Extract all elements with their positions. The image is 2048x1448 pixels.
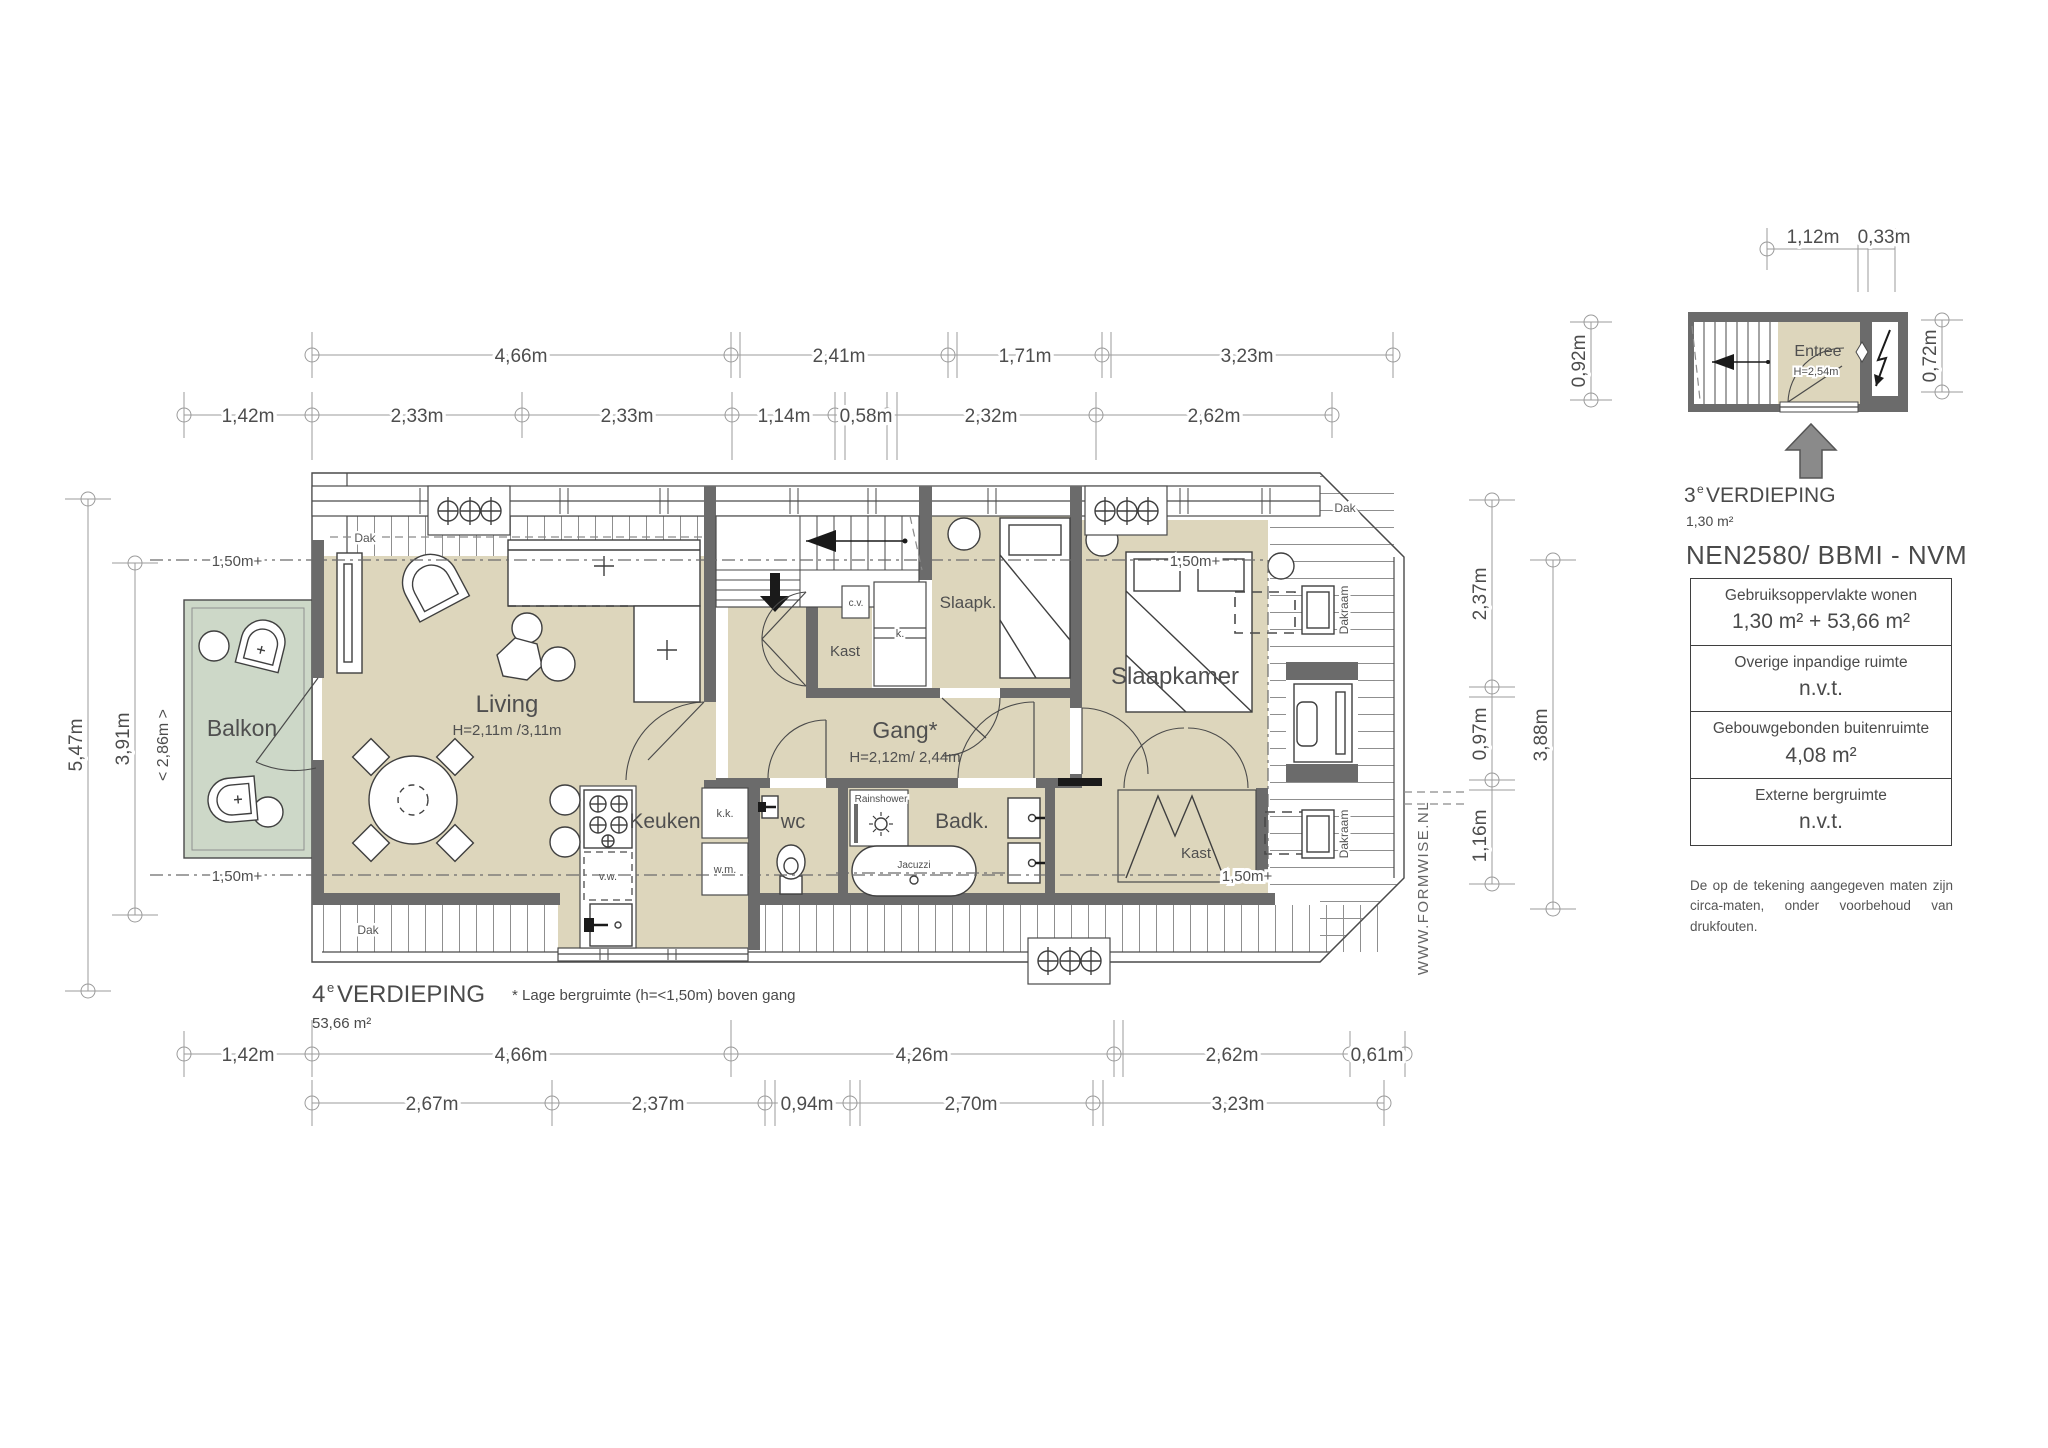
dim-mini-right: 0,72m (1920, 330, 1941, 383)
bedroom-stool-right (1268, 553, 1294, 579)
dim-top1-0: 4,66m (495, 346, 548, 367)
dim-bot2-2: 0,94m (781, 1094, 834, 1115)
dim-left-1: 3,91m (113, 713, 134, 766)
dim-bot1-4: 0,61m (1351, 1045, 1404, 1066)
legend-row-value: n.v.t. (1695, 674, 1947, 704)
kitchen-sink (584, 904, 632, 946)
dim-mini-left: 0,92m (1569, 335, 1590, 388)
floor4-word: VERDIEPING (337, 981, 485, 1008)
balcony-side-table (199, 631, 229, 661)
dim-right-2: 1,16m (1470, 810, 1491, 863)
entry-arrow-icon (1786, 424, 1836, 478)
legend-row: Gebouwgebonden buitenruimte 4,08 m² (1691, 712, 1951, 779)
dimensions-bottom: 1,42m 4,66m 4,26m 2,62m 0,61m 2,67m 2,37… (177, 1020, 1412, 1126)
living-label: Living (476, 691, 539, 718)
dim-top2-5: 2,32m (965, 406, 1018, 427)
dim-top2-6: 2,62m (1188, 406, 1241, 427)
legend-row-label: Gebruiksoppervlakte wonen (1695, 584, 1947, 607)
gang-height-label: H=2,12m/ 2,44m (849, 749, 960, 766)
kitchen-stool-1 (550, 785, 580, 815)
dim-top2-0: 1,42m (222, 406, 275, 427)
dak-label-bottom: Dak (357, 923, 379, 937)
legend-row-value: 4,08 m² (1695, 741, 1947, 771)
badk-label: Badk. (935, 810, 989, 833)
wm-label: w.m. (713, 864, 737, 876)
legend-row: Gebruiksoppervlakte wonen 1,30 m² + 53,6… (1691, 579, 1951, 646)
clearance-bedroom: 1,50m+ (1170, 553, 1221, 570)
legend-row: Overige inpandige ruimte n.v.t. (1691, 646, 1951, 713)
keuken-label: Keuken (629, 810, 700, 833)
clearance-bottom-left: 1,50m+ (212, 868, 263, 885)
dak-label-top: Dak (354, 531, 376, 545)
entree-label: Entree (1794, 343, 1841, 360)
legend-row-label: Externe bergruimte (1695, 784, 1947, 807)
jacuzzi-label: Jacuzzi (897, 860, 930, 871)
desk (1286, 680, 1358, 764)
balkon-label: Balkon (207, 715, 277, 741)
dim-top2-4: 0,58m (840, 406, 893, 427)
dim-top1-1: 2,41m (813, 346, 866, 367)
floor3-num: 3 (1684, 484, 1696, 507)
living-height-label: H=2,11m /3,11m (452, 722, 561, 739)
dim-top2-1: 2,33m (391, 406, 444, 427)
floorplan-page: 4,66m 2,41m 1,71m 3,23m 1,42m 2,33m 2,33… (0, 0, 2048, 1448)
dim-bot1-3: 2,62m (1206, 1045, 1259, 1066)
dakraam-label-2: Dakraam (1337, 810, 1351, 859)
floor3-area: 1,30 m² (1686, 513, 1734, 529)
dimensions-right: 2,37m 0,97m 1,16m 3,88m (1469, 493, 1576, 916)
kast-center-label: Kast (830, 643, 861, 660)
dak-label-right: Dak (1334, 501, 1356, 515)
dim-right-1: 0,97m (1470, 708, 1491, 761)
slaapk-stool (948, 518, 980, 550)
floor4-area: 53,66 m² (312, 1015, 371, 1032)
dim-mini-top-0: 1,12m (1787, 227, 1840, 248)
vent-box-1 (428, 486, 510, 535)
balcony: Balkon (184, 600, 312, 858)
clearance-bottom-right: 1,50m+ (1222, 868, 1273, 885)
dim-bot2-1: 2,37m (632, 1094, 685, 1115)
cv-label: c.v. (849, 598, 864, 609)
rainshower: Rainshower (850, 790, 908, 846)
dim-right-0: 2,37m (1470, 568, 1491, 621)
dim-bot2-4: 3,23m (1212, 1094, 1265, 1115)
dim-right-outer: 3,88m (1531, 709, 1552, 762)
k-label: k. (896, 628, 905, 640)
entree-height-label: H=2,54m (1794, 366, 1839, 378)
dim-bot1-0: 1,42m (222, 1045, 275, 1066)
legend-row-label: Gebouwgebonden buitenruimte (1695, 717, 1947, 740)
vent-box-3 (1028, 938, 1110, 984)
stove (584, 790, 632, 848)
gang-label: Gang* (872, 717, 937, 743)
dim-top2-2: 2,33m (601, 406, 654, 427)
kk-label: k.k. (716, 808, 733, 820)
dim-balkon-width: < 2,86m > (155, 709, 172, 781)
dim-mini-top-1: 0,33m (1858, 227, 1911, 248)
dim-left-0: 5,47m (66, 719, 87, 772)
legend-row: Externe bergruimte n.v.t. (1691, 779, 1951, 845)
miniplan: 1,12m 0,33m 0,92m 0,72m (1569, 227, 1963, 529)
dim-bot2-0: 2,67m (406, 1094, 459, 1115)
dim-top1-2: 1,71m (999, 346, 1052, 367)
dimensions-left: 5,47m 3,91m < 2,86m > (65, 492, 172, 998)
toilet (777, 845, 805, 894)
towel-rail (1058, 778, 1102, 786)
legend-row-label: Overige inpandige ruimte (1695, 651, 1947, 674)
floor4-sup: e (327, 980, 334, 995)
floor3-word: VERDIEPING (1706, 484, 1836, 507)
nen-standard-heading: NEN2580/ BBMI - NVM (1686, 540, 1954, 571)
vent-box-2 (1085, 486, 1167, 535)
dining-table (353, 739, 474, 862)
dimensions-top: 4,66m 2,41m 1,71m 3,23m 1,42m 2,33m 2,33… (177, 332, 1400, 460)
kitchen-stool-2 (550, 827, 580, 857)
floor3-sup: e (1697, 482, 1704, 496)
slaapkamer-label: Slaapkamer (1111, 663, 1239, 690)
dim-top1-3: 3,23m (1221, 346, 1274, 367)
legend-row-value: n.v.t. (1695, 807, 1947, 837)
wc-label: wc (780, 811, 805, 833)
dim-top2-3: 1,14m (758, 406, 811, 427)
watermark: WWW.FORMWISE.NL (1415, 801, 1432, 975)
clearance-top-left: 1,50m+ (212, 553, 263, 570)
dim-bot2-3: 2,70m (945, 1094, 998, 1115)
floor4-footnote: * Lage bergruimte (h=<1,50m) boven gang (512, 987, 796, 1004)
rainshower-label: Rainshower (855, 794, 908, 805)
radiator (337, 553, 362, 673)
kast-bedroom-label: Kast (1181, 845, 1212, 862)
dakraam-label-1: Dakraam (1337, 586, 1351, 635)
floor4-num: 4 (312, 981, 325, 1008)
slaapk-bed (1000, 518, 1070, 678)
dim-bot1-1: 4,66m (495, 1045, 548, 1066)
disclaimer-text: De op de tekening aangegeven maten zijn … (1690, 876, 1953, 937)
slaapk-label: Slaapk. (940, 593, 997, 612)
legend-row-value: 1,30 m² + 53,66 m² (1695, 607, 1947, 637)
area-legend-table: Gebruiksoppervlakte wonen 1,30 m² + 53,6… (1690, 578, 1952, 846)
floor4-title-group: 4 e VERDIEPING * Lage bergruimte (h=<1,5… (312, 980, 796, 1032)
dim-bot1-2: 4,26m (896, 1045, 949, 1066)
vw-label: v.w. (599, 871, 617, 883)
